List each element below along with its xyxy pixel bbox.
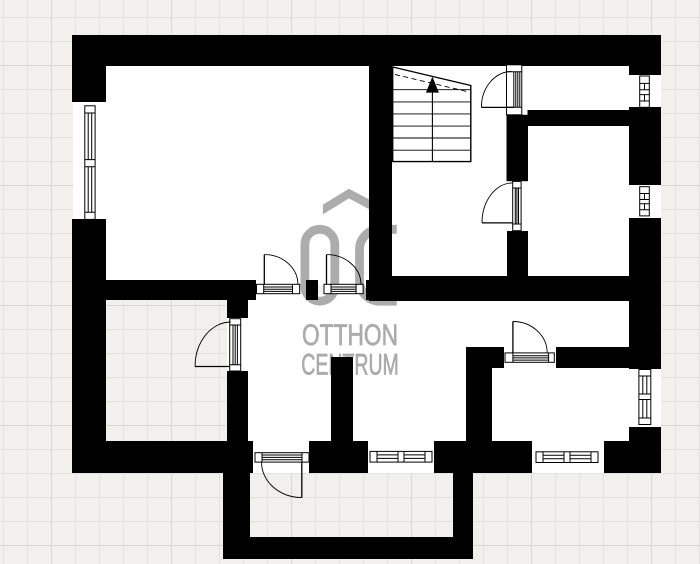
svg-text:OTTHON: OTTHON <box>302 319 398 352</box>
